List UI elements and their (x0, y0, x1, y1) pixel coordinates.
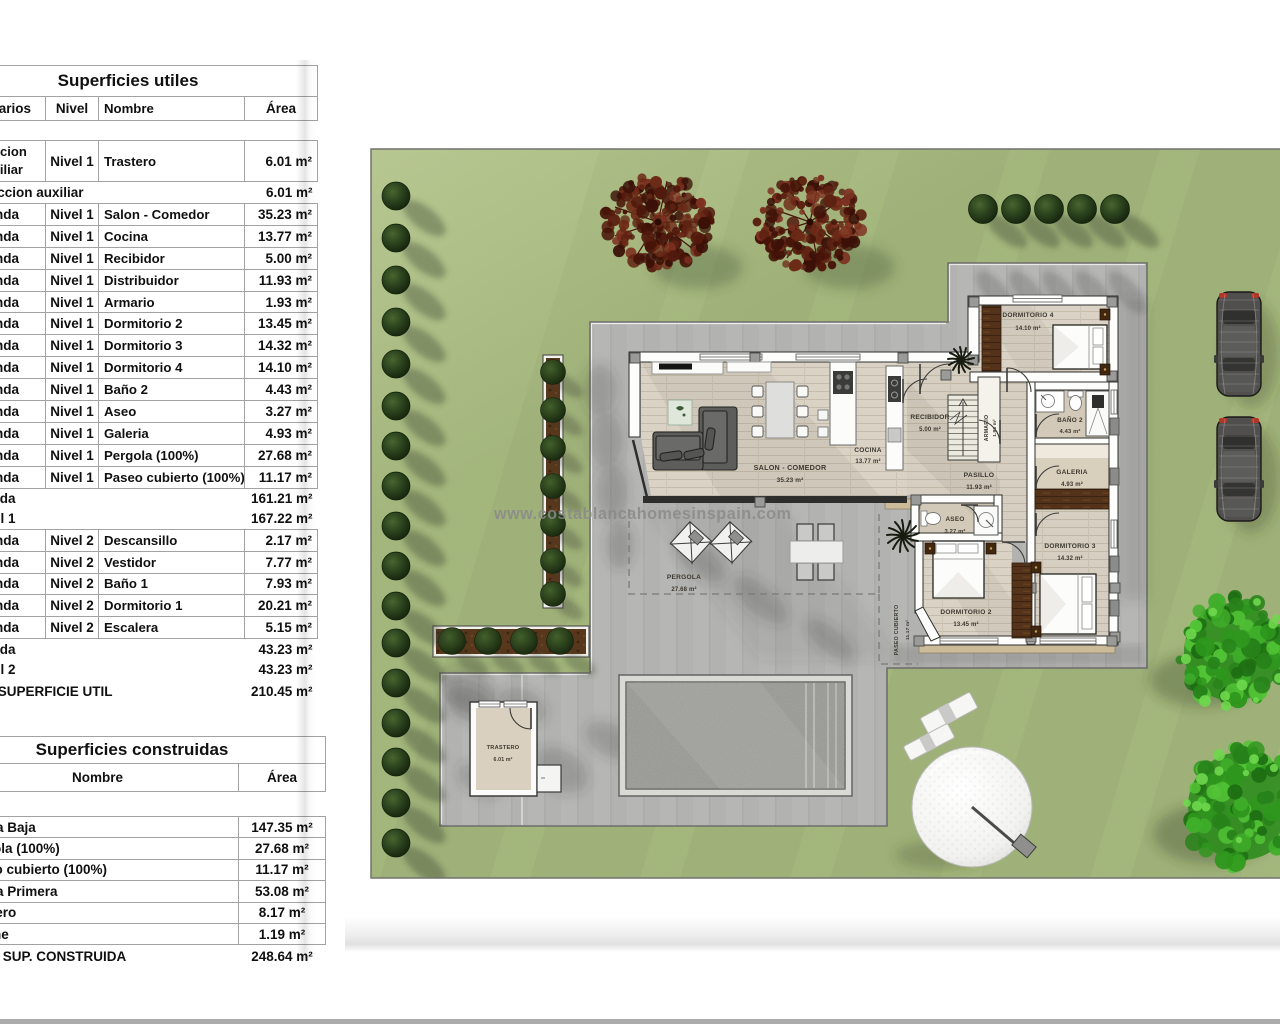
svg-text:14.10 m²: 14.10 m² (1015, 325, 1040, 332)
svg-text:RECIBIDOR: RECIBIDOR (910, 414, 949, 421)
svg-text:DORMITORIO 4: DORMITORIO 4 (1002, 312, 1053, 319)
svg-text:TRASTERO: TRASTERO (487, 745, 520, 751)
svg-text:1.93 m²: 1.93 m² (992, 419, 998, 437)
svg-text:PASILLO: PASILLO (964, 472, 995, 479)
svg-text:5.00 m²: 5.00 m² (919, 426, 941, 433)
svg-text:PASEO CUBIERTO: PASEO CUBIERTO (894, 605, 900, 656)
svg-text:3.27 m²: 3.27 m² (944, 528, 965, 535)
svg-text:DORMITORIO 3: DORMITORIO 3 (1044, 543, 1095, 550)
svg-text:COCINA: COCINA (854, 447, 882, 454)
svg-text:GALERIA: GALERIA (1056, 469, 1087, 476)
svg-text:DORMITORIO 2: DORMITORIO 2 (940, 609, 991, 616)
svg-text:BAÑO 2: BAÑO 2 (1057, 415, 1083, 424)
svg-text:6.01 m²: 6.01 m² (494, 757, 513, 763)
svg-text:11.93 m²: 11.93 m² (966, 484, 992, 491)
svg-text:ASEO: ASEO (945, 516, 964, 523)
svg-text:13.77 m²: 13.77 m² (855, 458, 880, 465)
svg-text:13.45 m²: 13.45 m² (953, 621, 978, 628)
svg-text:PERGOLA: PERGOLA (667, 574, 701, 581)
svg-text:35.23 m²: 35.23 m² (777, 477, 804, 484)
svg-text:11.17 m²: 11.17 m² (905, 620, 911, 640)
svg-text:4.93 m²: 4.93 m² (1061, 481, 1083, 488)
svg-text:ARMARIO: ARMARIO (984, 415, 990, 442)
svg-text:14.32 m²: 14.32 m² (1057, 555, 1082, 562)
svg-text:www.costablancahomesinspain.co: www.costablancahomesinspain.com (493, 505, 791, 523)
svg-text:27.68 m²: 27.68 m² (671, 586, 696, 593)
svg-text:4.43 m²: 4.43 m² (1059, 428, 1080, 435)
svg-text:SALON - COMEDOR: SALON - COMEDOR (754, 463, 827, 472)
